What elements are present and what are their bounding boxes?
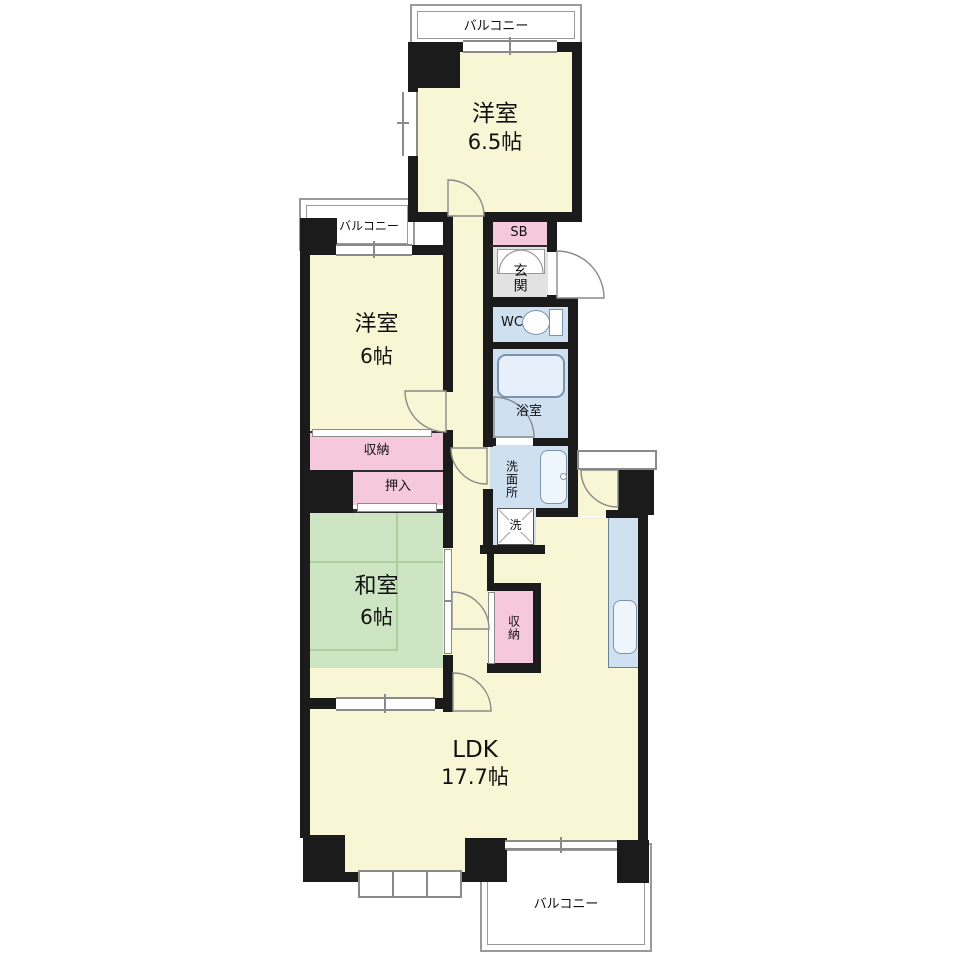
balcony-top-label: バルコニー [412, 15, 580, 34]
floor-plan: バルコニー バルコニー バルコニー [0, 0, 960, 960]
bathtub [497, 354, 565, 398]
window-western1-left [402, 92, 418, 156]
wall [536, 508, 578, 517]
sliding-door-storage-ldk [488, 592, 495, 664]
wall [568, 297, 578, 445]
wall [483, 489, 493, 547]
wall [353, 470, 443, 472]
room-label-western2-name: 洋室 [310, 313, 443, 338]
door-front [557, 251, 604, 298]
label-toilet: WC [492, 316, 532, 331]
wall [300, 250, 310, 838]
wall [483, 342, 568, 349]
label-storage-hall: 収納 [310, 444, 443, 459]
window-ldk-bottom [358, 870, 462, 898]
label-closet: 押入 [353, 480, 443, 495]
room-label-ldk-name: LDK [380, 738, 570, 764]
toilet-tank [549, 309, 563, 336]
label-washroom: 洗面所 [504, 450, 517, 508]
tatami-line [310, 649, 397, 651]
wall [443, 212, 453, 247]
wall [483, 212, 582, 222]
wall [443, 247, 453, 392]
wall [300, 218, 337, 252]
room-label-japanese-name: 和室 [310, 575, 443, 600]
floor-ldk-top [575, 466, 623, 516]
wall [443, 430, 453, 548]
label-entrance: 玄関 [511, 254, 527, 302]
label-bathroom: 浴室 [490, 405, 568, 420]
window-tick [397, 122, 409, 124]
wall [487, 553, 494, 587]
balcony-bottom-label: バルコニー [482, 893, 650, 912]
label-storage-ldk: 収納 [506, 606, 519, 650]
window-tick [509, 37, 511, 55]
wall [606, 510, 642, 518]
window-tick [426, 870, 428, 898]
wall [547, 212, 557, 252]
window-tick [560, 837, 562, 853]
wall [483, 297, 578, 307]
sliding-door-closet [357, 503, 437, 512]
window-tick [392, 870, 394, 898]
room-label-western1-name: 洋室 [418, 102, 572, 128]
wall [490, 245, 548, 247]
wall [617, 840, 649, 883]
sliding-door-tick [444, 600, 452, 602]
room-label-ldk-size: 17.7帖 [380, 766, 570, 790]
label-laundry: 洗 [497, 519, 534, 532]
kitchen-sink [613, 600, 637, 654]
wall [533, 587, 541, 667]
wall [618, 468, 654, 515]
wall [303, 835, 345, 882]
room-label-western1-size: 6.5帖 [418, 131, 572, 155]
wall [638, 513, 648, 843]
sliding-door-storage-hall [312, 429, 432, 437]
wall [572, 42, 582, 222]
wall [300, 470, 353, 513]
window-service-sill [577, 450, 657, 470]
wall [483, 438, 496, 446]
washbasin-faucet [560, 473, 567, 480]
room-label-western2-size: 6帖 [310, 345, 443, 367]
room-label-japanese-size: 6帖 [310, 606, 443, 628]
label-shoe-box: SB [490, 226, 548, 241]
wall [465, 838, 507, 882]
window-tick [373, 241, 375, 258]
wall [408, 212, 447, 222]
tatami-line [310, 561, 443, 563]
window-tick [384, 694, 386, 713]
